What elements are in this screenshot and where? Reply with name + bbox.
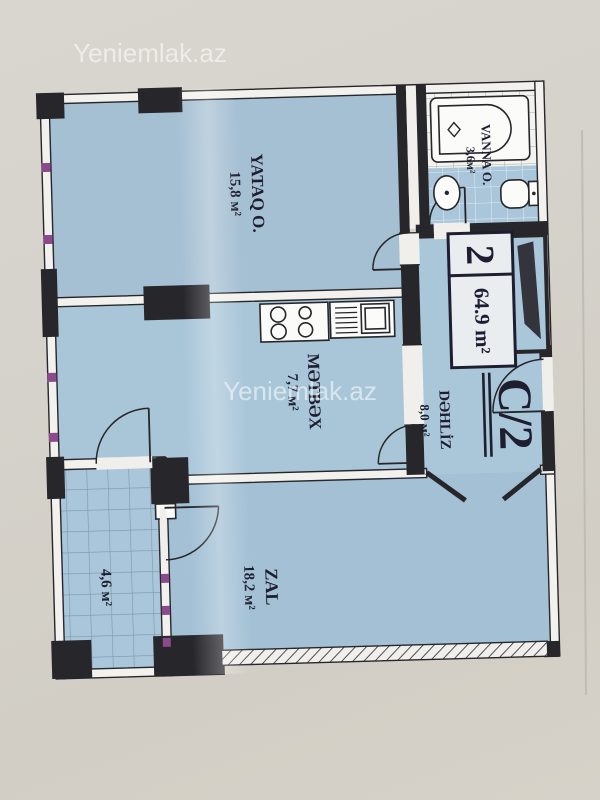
sink-icon bbox=[433, 175, 460, 210]
floor-plan-photo: 2 64.9 m² C/2 YATAQ O. 15,8 м² MƏTBƏX 7,… bbox=[0, 0, 600, 800]
pillar bbox=[36, 92, 65, 119]
plan-code-text: C/2 bbox=[488, 377, 543, 450]
pillar bbox=[51, 640, 92, 679]
plan-code: C/2 bbox=[482, 371, 543, 457]
toilet-icon bbox=[501, 179, 539, 208]
badge-total-area: 64.9 m² bbox=[470, 288, 496, 354]
stove-icon bbox=[260, 302, 329, 342]
balcony-door-opening bbox=[96, 456, 152, 470]
bedroom-door-opening bbox=[399, 233, 420, 266]
hallway-name: DƏHLİZ bbox=[435, 390, 454, 450]
balcony-area: 4,6 м² bbox=[97, 569, 114, 607]
bathroom-name: VANNA O. bbox=[478, 124, 495, 186]
watermark-top: Yeniemlak.az bbox=[73, 38, 227, 68]
pillar bbox=[138, 87, 183, 113]
paper-edge-line bbox=[582, 130, 586, 695]
watermark-middle: Yeniemlak.az bbox=[223, 376, 377, 406]
kitchen-counter-sink-icon bbox=[330, 300, 395, 338]
badge-room-count: 2 bbox=[458, 244, 504, 265]
bedroom-name: YATAQ O. bbox=[247, 153, 268, 233]
balcony-living-door-opening bbox=[160, 508, 168, 560]
pillar bbox=[41, 269, 59, 337]
bathroom-area: 3,6м² bbox=[464, 147, 479, 175]
living-room-name: ZAL bbox=[261, 568, 282, 606]
entry-door-opening bbox=[541, 357, 554, 411]
apartment-badge: 2 64.9 m² bbox=[448, 232, 516, 368]
hallway-area: 8,0 м² bbox=[417, 404, 433, 437]
wall-hallway-left-mid bbox=[401, 265, 421, 345]
floor-plan-svg: 2 64.9 m² C/2 YATAQ O. 15,8 м² MƏTBƏX 7,… bbox=[0, 0, 600, 800]
pillar bbox=[46, 457, 65, 499]
pillar bbox=[150, 457, 189, 504]
